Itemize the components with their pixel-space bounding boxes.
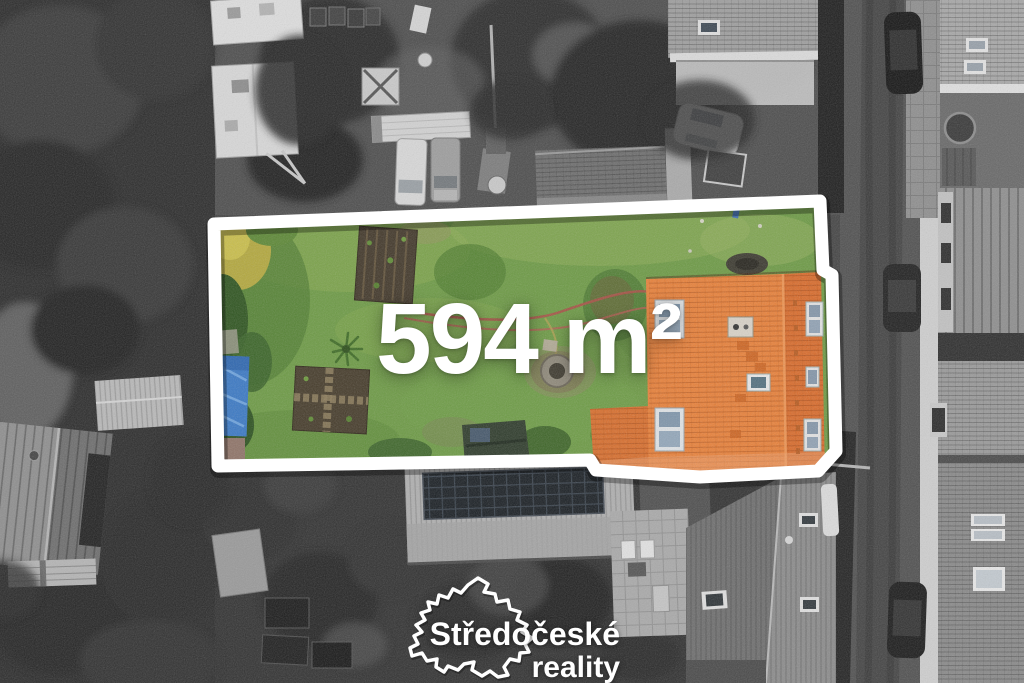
aerial-listing-photo: 594 m² Středočeské reality [0,0,1024,683]
plot-area-label: 594 m² [376,289,681,389]
brand-suffix: reality [532,653,620,683]
brand-name: Středočeské [430,618,620,650]
watermark-brand: Středočeské reality [398,566,626,683]
